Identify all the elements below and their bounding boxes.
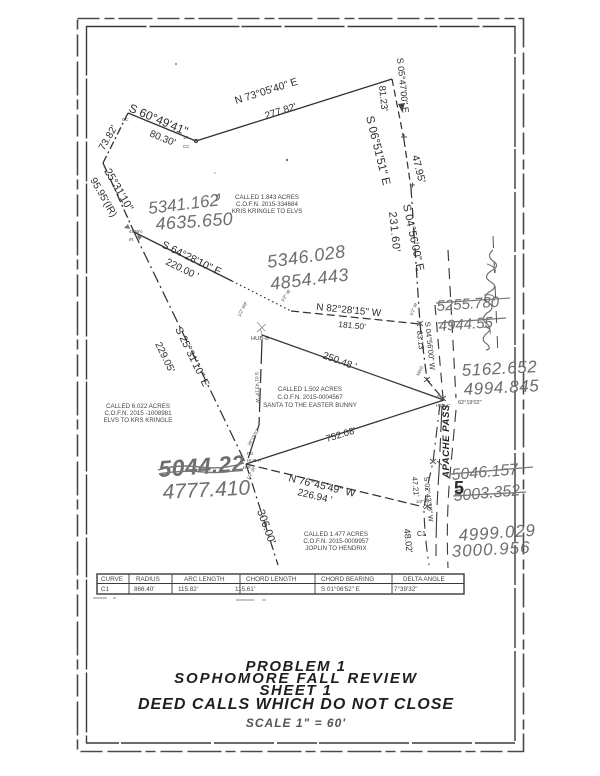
svg-text:62°19'02": 62°19'02"	[458, 400, 482, 406]
svg-text:CHORD BEARING: CHORD BEARING	[321, 576, 374, 583]
svg-text:DEED CALLS WHICH DO NOT C: DEED CALLS WHICH DO NOT CLOSE	[138, 696, 454, 713]
svg-text:ARC LENGTH: ARC LENGTH	[184, 576, 225, 583]
svg-text:1/2" IR: 1/2" IR	[416, 499, 430, 504]
svg-text:CALLED 6.022 ACRES: CALLED 6.022 ACRES	[106, 403, 170, 410]
svg-text:SCALE 1" = 60': SCALE 1" = 60'	[246, 716, 346, 730]
svg-text:S 01°06'52" E: S 01°06'52" E	[321, 585, 360, 593]
svg-text:SANTA TO THE EASTER BUNNY: SANTA TO THE EASTER BUNNY	[263, 402, 357, 409]
svg-text:10: 10	[183, 135, 189, 140]
svg-text:5: 5	[454, 478, 464, 498]
svg-text:866.40': 866.40'	[134, 586, 154, 593]
svg-text:C.O.F.N. 2015-0004567: C.O.F.N. 2015-0004567	[277, 394, 343, 401]
svg-text:CALLED 1.843 ACRES: CALLED 1.843 ACRES	[235, 194, 299, 201]
svg-text:RADIUS: RADIUS	[136, 576, 160, 583]
svg-text:IR: IR	[129, 237, 134, 242]
svg-text:CALLED 1.477 ACRES: CALLED 1.477 ACRES	[304, 531, 368, 538]
svg-text:CC: CC	[122, 117, 129, 122]
svg-text:C.O.F.N. 2015-334684: C.O.F.N. 2015-334684	[236, 201, 298, 208]
svg-text:115.82': 115.82'	[178, 586, 198, 593]
svg-text:CC: CC	[183, 144, 190, 149]
svg-text:DELTA ANGLE: DELTA ANGLE	[403, 576, 445, 583]
svg-text:HUB-A: HUB-A	[247, 458, 261, 463]
svg-text:ELVS TO KRS KRINGLE: ELVS TO KRS KRINGLE	[104, 417, 173, 424]
svg-text:C.O.F.N. 2015 -1008981: C.O.F.N. 2015 -1008981	[104, 410, 172, 417]
svg-text:S 01°43'10" W: S 01°43'10" W	[253, 372, 260, 404]
svg-text:CALLED 1.502 ACRES: CALLED 1.502 ACRES	[278, 386, 342, 393]
svg-text:4936½: 4936½	[129, 228, 143, 234]
svg-text:CURVE: CURVE	[101, 576, 123, 583]
svg-text:115.61': 115.61'	[235, 586, 255, 593]
svg-text:PD: PD	[247, 451, 254, 456]
svg-text:CHORD LENGTH: CHORD LENGTH	[246, 576, 297, 583]
svg-text:HUB-B: HUB-B	[251, 336, 269, 342]
svg-text:C1: C1	[417, 531, 426, 538]
svg-text:7°39'32": 7°39'32"	[394, 585, 417, 593]
svg-text:4994.845: 4994.845	[463, 376, 540, 399]
svg-text:KRIS KRINGLE TO ELVS: KRIS KRINGLE TO ELVS	[232, 208, 303, 215]
svg-text:C1: C1	[101, 586, 110, 593]
svg-text:C.O.F.N. 2015-0009957: C.O.F.N. 2015-0009957	[303, 538, 369, 545]
svg-text:JOPLIN TO HENDRIX: JOPLIN TO HENDRIX	[305, 545, 366, 552]
svg-text:4777.410: 4777.410	[162, 476, 251, 504]
